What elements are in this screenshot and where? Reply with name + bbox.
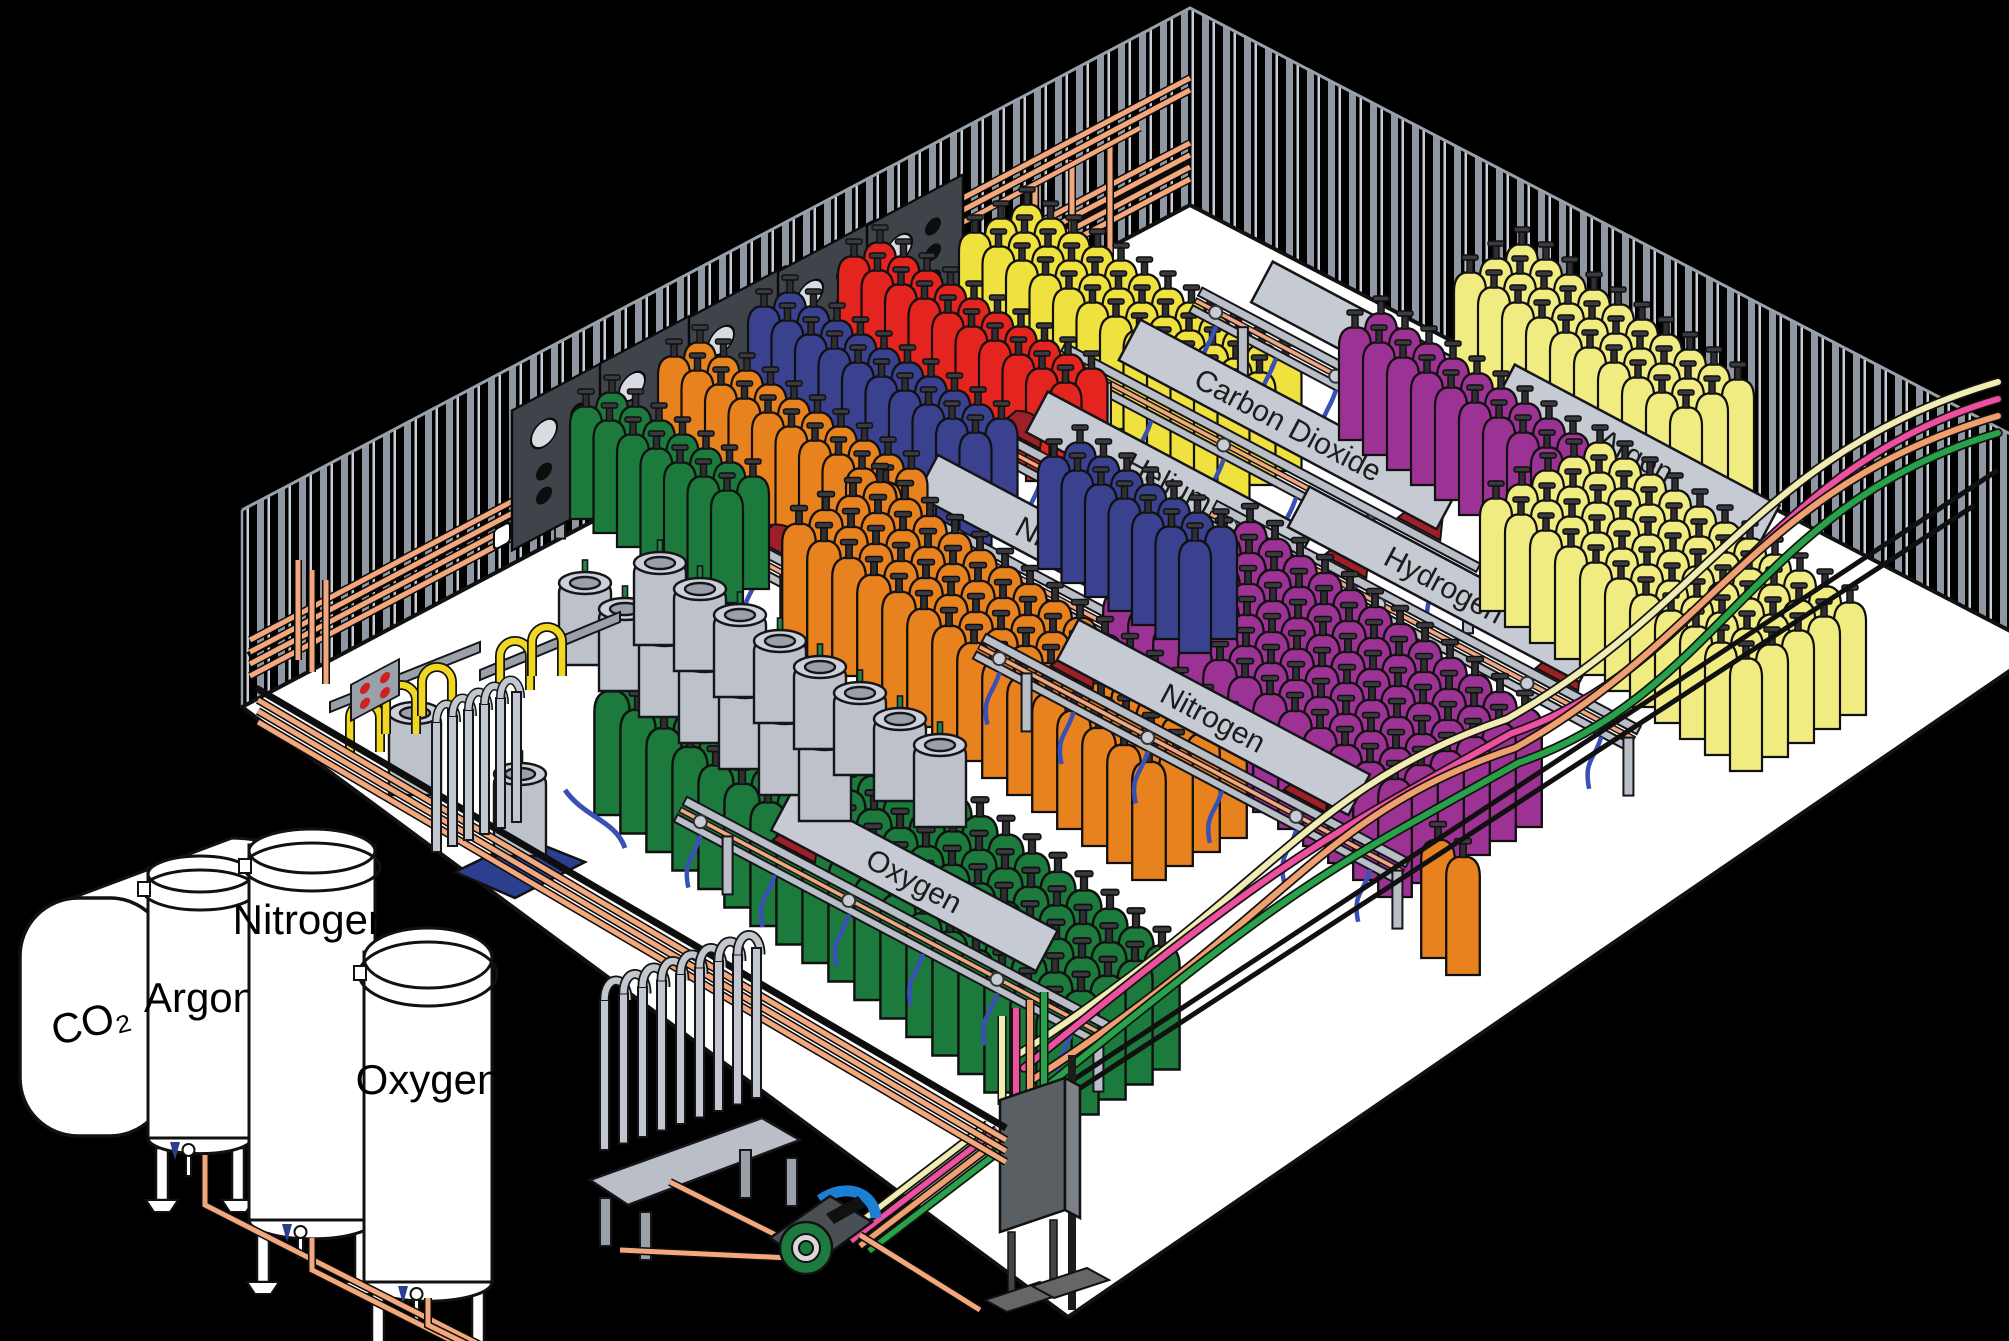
vaporizer-tube <box>638 987 647 1137</box>
tank-label-argon: Argon <box>144 974 256 1021</box>
valve-knob-icon <box>1217 438 1230 451</box>
valve-knob-icon <box>842 894 855 907</box>
valve-knob-icon <box>1141 731 1154 744</box>
gas-cylinder <box>1132 744 1166 881</box>
vaporizer-tube <box>600 1000 609 1150</box>
tank-label-oxygen: Oxygen <box>356 1056 501 1103</box>
vaporizer-tube <box>695 968 704 1118</box>
valve-knob-icon <box>1521 677 1534 690</box>
valve-knob-icon <box>993 652 1006 665</box>
vaporizer-tube <box>676 974 685 1124</box>
liquid-dewar <box>914 722 966 827</box>
vaporizer-tube <box>512 692 521 822</box>
valve-knob-icon <box>991 973 1004 986</box>
gas-plant-illustration: ArgonCarbon DioxideHeliumNitrogenOxygenA… <box>0 0 2009 1341</box>
vaporizer-tube <box>480 704 489 834</box>
vaporizer-tube <box>496 698 505 828</box>
vaporizer-tube <box>657 981 666 1131</box>
valve-knob-icon <box>1290 810 1303 823</box>
gas-plant-scene: ArgonCarbon DioxideHeliumNitrogenOxygenA… <box>0 0 2009 1341</box>
gas-cylinder <box>1179 523 1211 653</box>
valve-knob-icon <box>1209 306 1222 319</box>
vaporizer-tube <box>448 716 457 846</box>
distribution-panel-face <box>1000 1078 1065 1232</box>
tank-leg <box>232 1148 244 1200</box>
vaporizer-tube <box>714 961 723 1111</box>
vaporizer-tube <box>619 994 628 1144</box>
vaporizer-tube <box>464 710 473 840</box>
vaporizer-tube <box>752 948 761 1098</box>
rail-post <box>1022 673 1032 731</box>
tank-leg <box>156 1148 168 1200</box>
vaporizer-tube <box>432 722 441 852</box>
tank-valve-icon <box>411 1288 423 1300</box>
rail-post <box>723 836 733 894</box>
vaporizer-tube <box>733 955 742 1105</box>
gas-cylinder <box>1446 839 1480 976</box>
storage-tank-oxygen: Oxygen <box>354 928 500 1341</box>
tank-label-nitrogen: Nitrogen <box>233 896 392 943</box>
tank-valve-icon <box>295 1226 307 1238</box>
valve-knob-icon <box>694 815 707 828</box>
tank-valve-icon <box>183 1144 195 1156</box>
rail-post <box>1623 738 1633 796</box>
tank-leg <box>472 1292 484 1341</box>
panel-leg <box>1008 1232 1015 1294</box>
